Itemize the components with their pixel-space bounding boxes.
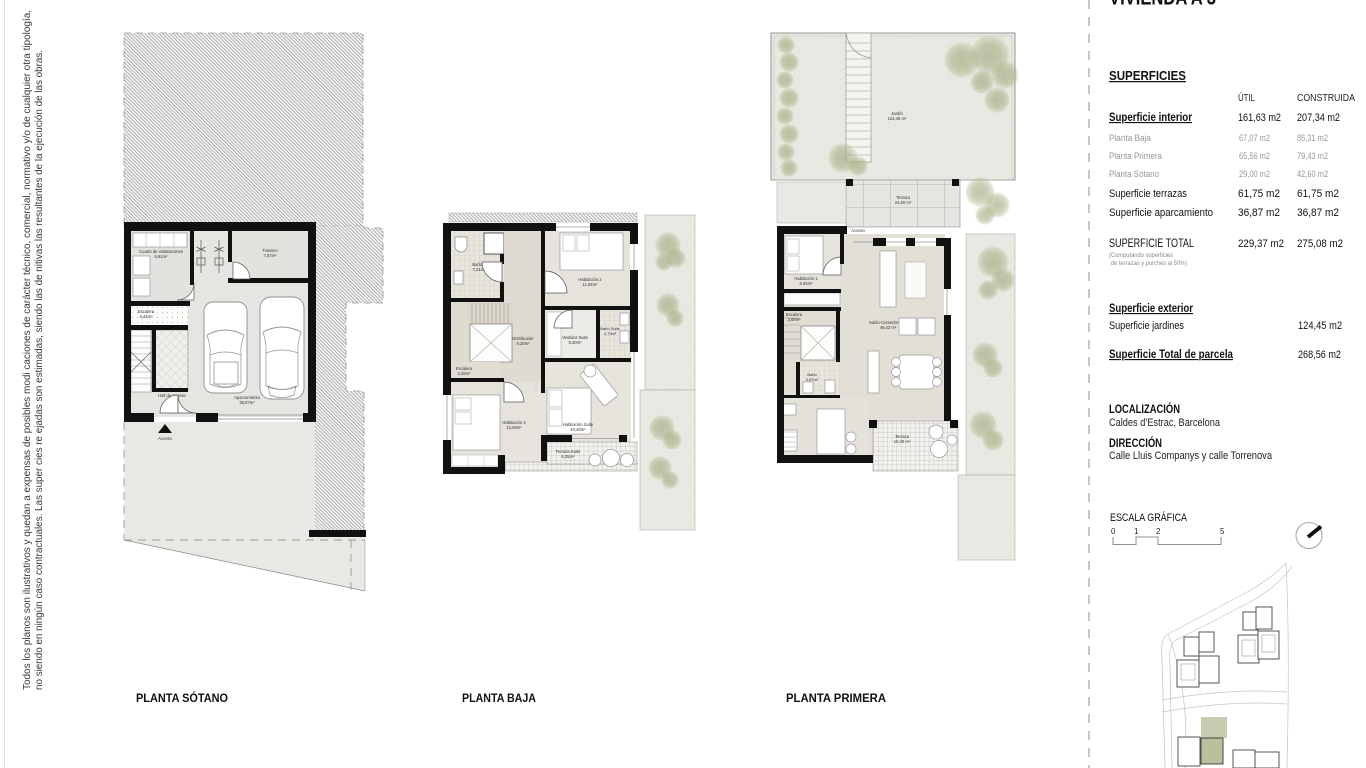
- svg-text:6,61m²: 6,61m²: [154, 254, 168, 259]
- svg-text:3,26m²: 3,26m²: [457, 371, 471, 376]
- svg-text:36,87 m2: 36,87 m2: [1297, 207, 1339, 219]
- svg-text:Caldes d’Estrac, Barcelona: Caldes d’Estrac, Barcelona: [1109, 417, 1221, 429]
- svg-text:DIRECCIÓN: DIRECCIÓN: [1109, 437, 1162, 450]
- svg-text:61,75 m2: 61,75 m2: [1297, 188, 1339, 200]
- svg-text:Todos los planos son ilustrati: Todos los planos son ilustrativos y qued…: [22, 10, 33, 690]
- svg-text:7,67m²: 7,67m²: [263, 253, 277, 258]
- svg-text:4,44m²: 4,44m²: [139, 314, 153, 319]
- svg-text:24,50 m²: 24,50 m²: [895, 200, 912, 205]
- svg-text:Planta Baja: Planta Baja: [1109, 133, 1151, 143]
- svg-text:9,20m²: 9,20m²: [568, 340, 582, 345]
- svg-text:1: 1: [1134, 527, 1139, 536]
- svg-text:61,75 m2: 61,75 m2: [1238, 188, 1280, 200]
- svg-text:ESCALA GRÁFICA: ESCALA GRÁFICA: [1110, 511, 1188, 524]
- svg-text:(Computando superficies: (Computando superficies: [1109, 252, 1173, 259]
- svg-text:Superficie Total de parcela: Superficie Total de parcela: [1109, 349, 1234, 361]
- svg-text:Planta Sótano: Planta Sótano: [1109, 169, 1159, 179]
- svg-text:Superficie terrazas: Superficie terrazas: [1109, 188, 1187, 200]
- svg-text:124,45 m²: 124,45 m²: [888, 116, 907, 121]
- svg-text:42,60 m2: 42,60 m2: [1297, 169, 1328, 179]
- svg-text:49,42 m²: 49,42 m²: [880, 325, 897, 330]
- svg-text:SUPERFICIE TOTAL: SUPERFICIE TOTAL: [1109, 238, 1194, 250]
- svg-text:36,87 m2: 36,87 m2: [1238, 207, 1280, 219]
- svg-text:Acceso: Acceso: [158, 436, 172, 441]
- svg-text:10,40m²: 10,40m²: [570, 427, 586, 432]
- svg-text:LOCALIZACIÓN: LOCALIZACIÓN: [1109, 403, 1180, 416]
- svg-text:79,43 m2: 79,43 m2: [1297, 151, 1328, 161]
- svg-text:161,63 m2: 161,63 m2: [1238, 112, 1281, 124]
- svg-text:VIVIENDA A 3: VIVIENDA A 3: [1109, 0, 1216, 10]
- svg-text:Superficie jardines: Superficie jardines: [1109, 320, 1184, 332]
- svg-text:15,30 m²: 15,30 m²: [894, 439, 911, 444]
- svg-text:85,31 m2: 85,31 m2: [1297, 133, 1328, 143]
- svg-text:3,87m²: 3,87m²: [806, 377, 819, 382]
- svg-text:PLANTA SÓTANO: PLANTA SÓTANO: [136, 691, 228, 705]
- svg-text:0: 0: [1111, 527, 1116, 536]
- svg-text:6,35m²: 6,35m²: [561, 454, 575, 459]
- svg-text:de terrazas y porches al 50%): de terrazas y porches al 50%): [1111, 260, 1187, 267]
- svg-text:275,08 m2: 275,08 m2: [1297, 238, 1343, 250]
- svg-text:ÚTIL: ÚTIL: [1238, 91, 1255, 104]
- svg-text:36,87m²: 36,87m²: [239, 400, 255, 405]
- svg-text:67,07 m2: 67,07 m2: [1239, 133, 1270, 143]
- svg-text:13,59m²: 13,59m²: [506, 425, 522, 430]
- svg-text:no siendo en ningún caso contr: no siendo en ningún caso contractuales. …: [34, 50, 45, 690]
- svg-text:Planta Primera: Planta Primera: [1109, 151, 1162, 161]
- svg-text:Acceso: Acceso: [851, 228, 865, 233]
- svg-text:SUPERFICIES: SUPERFICIES: [1109, 69, 1186, 83]
- svg-text:PLANTA BAJA: PLANTA BAJA: [462, 691, 536, 705]
- svg-text:PLANTA PRIMERA: PLANTA PRIMERA: [786, 691, 886, 705]
- svg-text:8,62m²: 8,62m²: [799, 281, 813, 286]
- svg-text:268,56 m2: 268,56 m2: [1298, 349, 1341, 361]
- svg-text:3,69m²: 3,69m²: [787, 317, 801, 322]
- svg-text:124,45 m2: 124,45 m2: [1298, 320, 1342, 332]
- svg-text:Superficie aparcamiento: Superficie aparcamiento: [1109, 207, 1213, 219]
- svg-text:2: 2: [1156, 527, 1161, 536]
- svg-text:9,20m²: 9,20m²: [516, 341, 530, 346]
- svg-text:65,56 m2: 65,56 m2: [1239, 151, 1270, 161]
- svg-text:4,79m²: 4,79m²: [604, 331, 617, 336]
- svg-text:29,00 m2: 29,00 m2: [1239, 169, 1270, 179]
- svg-text:Calle Lluis Companys y calle T: Calle Lluis Companys y calle Torrenova: [1109, 450, 1273, 462]
- svg-text:CONSTRUIDA: CONSTRUIDA: [1297, 92, 1355, 104]
- svg-text:229,37 m2: 229,37 m2: [1238, 238, 1284, 250]
- svg-text:207,34 m2: 207,34 m2: [1297, 112, 1340, 124]
- svg-text:5: 5: [1220, 527, 1225, 536]
- svg-text:Superficie interior: Superficie interior: [1109, 112, 1192, 124]
- svg-text:11,94m²: 11,94m²: [582, 282, 598, 287]
- svg-text:Superficie exterior: Superficie exterior: [1109, 303, 1193, 315]
